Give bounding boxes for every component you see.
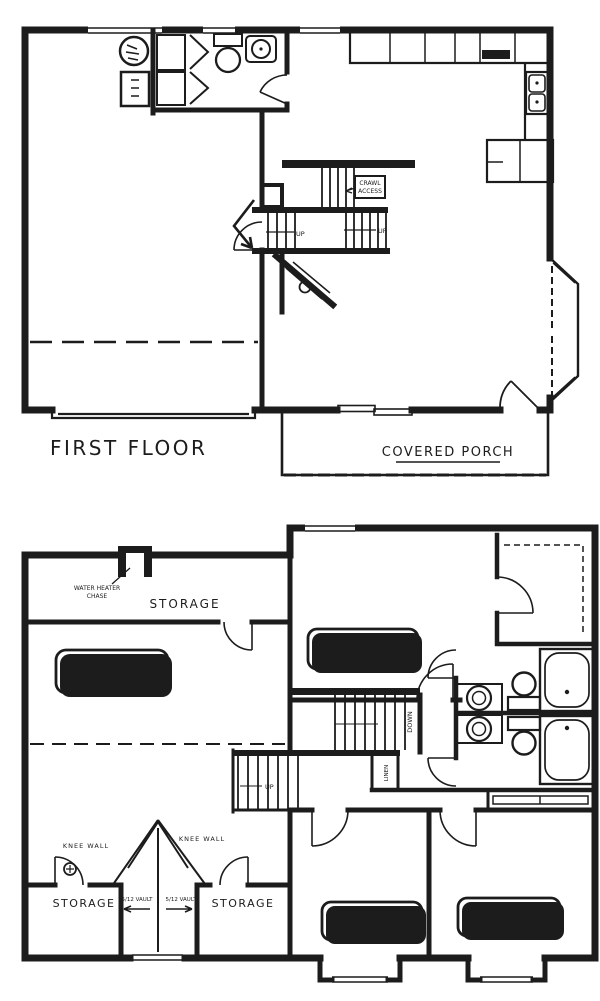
- linen-label: LINEN: [384, 765, 390, 781]
- garage-door-recess: [52, 410, 255, 418]
- storage-right-label: STORAGE: [212, 897, 275, 910]
- laundry-powder-room: [153, 30, 287, 113]
- vault-label-right: 5/12 VAULT: [166, 897, 198, 903]
- master-bath-vanity: [456, 684, 502, 712]
- front-door: [500, 381, 538, 408]
- stair-treads-down: [335, 695, 405, 750]
- stair-hatched-wall-2: [290, 688, 420, 695]
- water-heater-chase-label-2: CHASE: [87, 593, 108, 600]
- upper-storage-room: STORAGE: [25, 597, 290, 650]
- bedroom3-window-bay: [320, 958, 400, 982]
- closet-door-arc: [497, 577, 533, 613]
- crawl-access-label-2: ACCESS: [358, 188, 382, 195]
- first-floor-stairs: UP UP CRAWL ACCESS: [252, 160, 415, 312]
- bedroom2-closet: [488, 790, 588, 810]
- water-heater-symbol: [120, 37, 148, 65]
- sliding-door: [338, 406, 412, 416]
- bedroom-2: BEDROOM 2 10'-0" x 10'-0": [458, 898, 564, 982]
- washer-symbol: [157, 72, 185, 105]
- porch-walls: [282, 410, 548, 475]
- second-floor-plan: WATER HEATER CHASE STORAGE BONUS ROOM 19…: [25, 524, 595, 983]
- hall-bath-toilet: [508, 717, 540, 755]
- upper-storage-label: STORAGE: [149, 597, 220, 611]
- bedroom2-door-arc: [440, 810, 476, 846]
- first-floor-title: FIRST FLOOR: [50, 436, 207, 460]
- storage-left-door-arc: [55, 857, 83, 885]
- master-bath-toilet: [508, 673, 540, 711]
- hall-bath-vanity: [456, 715, 502, 743]
- electrical-panel-symbol: [121, 72, 149, 106]
- kitchen: [350, 33, 553, 182]
- bedroom3-name: BEDROOM 3: [340, 910, 403, 921]
- dryer-symbol: [157, 35, 185, 70]
- hall-bath-door-arc: [428, 758, 456, 786]
- covered-porch: COVERED PORCH: [282, 381, 548, 475]
- stair-newel-box: [262, 185, 282, 207]
- stair-treads-upper: [322, 168, 354, 207]
- storage-door-arc: [224, 622, 252, 650]
- crawl-access-callout: CRAWL ACCESS: [346, 176, 385, 198]
- kitchen-island: [487, 140, 553, 182]
- bedroom3-door-arc: [312, 810, 348, 846]
- toilet-first-floor: [214, 34, 242, 72]
- understair-closet: [276, 256, 333, 312]
- second-floor-stairs: DOWN UP LINEN: [233, 688, 420, 812]
- crawl-access-label-1: CRAWL: [359, 180, 381, 187]
- mbr-dims: 14'-8" x 12'-3": [328, 654, 397, 663]
- bonus-room-name: BONUS ROOM: [74, 660, 149, 671]
- bedroom2-name: BEDROOM 2: [477, 906, 540, 917]
- bonus-room: BONUS ROOM 19'-4" x 19'-0": [30, 650, 285, 744]
- bedroom-hall: [290, 790, 595, 846]
- kitchen-sink: [526, 72, 548, 114]
- covered-porch-label: COVERED PORCH: [382, 445, 514, 460]
- bay-window: [550, 258, 578, 402]
- down-label: DOWN: [406, 711, 414, 733]
- vault-label-left: 5/12 VAULT: [122, 897, 154, 903]
- first-floor-exterior-walls: [25, 30, 550, 410]
- kitchen-counters: [350, 33, 550, 140]
- kneewall-storage-rooms: KNEE WALL KNEE WALL STORAGE STORAGE 5/12…: [25, 820, 290, 960]
- linen-closet: LINEN: [372, 756, 398, 790]
- garage: [30, 37, 262, 418]
- mbr-name: M BEDROOM: [329, 638, 398, 649]
- storage-left-label: STORAGE: [53, 897, 116, 910]
- bonus-room-dims: 19'-4" x 19'-0": [77, 676, 146, 685]
- powder-door-arc: [260, 75, 287, 104]
- water-heater-chase-label-1: WATER HEATER: [74, 585, 120, 592]
- first-floor-plan: UP UP CRAWL ACCESS: [25, 25, 578, 475]
- bedroom2-window-bay: [468, 958, 545, 982]
- stair-up-mark-right: UP: [378, 227, 387, 235]
- second-floor-exterior-walls: [25, 528, 595, 958]
- master-bath-tub: [540, 649, 594, 711]
- knee-wall-label-right: KNEE WALL: [179, 835, 225, 843]
- sink-first-floor: [246, 36, 276, 62]
- walkin-closet: [497, 535, 595, 644]
- up-label: UP: [265, 783, 274, 791]
- bedroom3-dims: 10'-0" x 10'-0": [339, 926, 405, 934]
- hall-bath-tub: [540, 716, 594, 784]
- storage-right-door-arc: [220, 857, 248, 885]
- stair-up-mark-left: UP: [296, 230, 305, 238]
- knee-wall-label-left: KNEE WALL: [63, 842, 109, 850]
- bedroom2-dims: 10'-0" x 10'-0": [476, 922, 542, 930]
- floor-plan-drawing: UP UP CRAWL ACCESS: [0, 0, 600, 1001]
- bifold-doors: [190, 35, 208, 104]
